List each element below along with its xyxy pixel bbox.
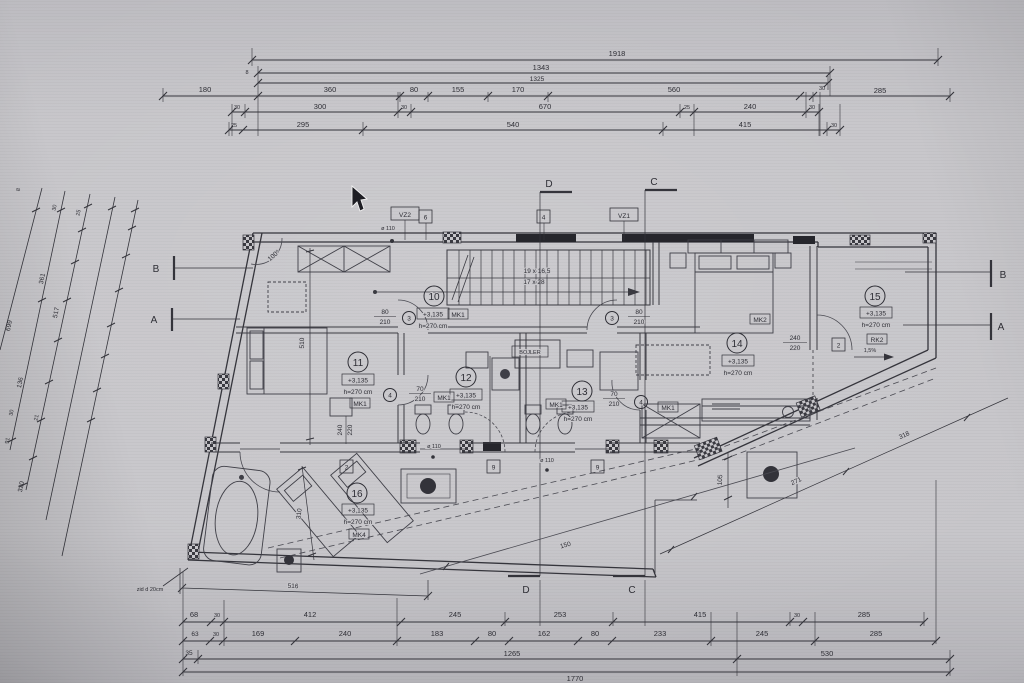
drain-note: ø 110 [381, 226, 395, 232]
door-type-circle: 3 [610, 316, 614, 323]
dim-label: 310 [295, 508, 303, 520]
shower-icon [401, 469, 456, 503]
dim-label: 169 [252, 629, 265, 638]
door-width: 240 [337, 424, 344, 435]
dim-label: 245 [449, 610, 462, 619]
door-width: 70 [416, 386, 424, 393]
drain-icon [545, 468, 549, 472]
dim-label: 25 [75, 209, 82, 216]
stair-tread-label: 17 x 28 [523, 279, 545, 286]
floor-tag-rk2: RK2 [871, 337, 884, 344]
floor-plan-drawing: 1918 1343 1325 8 180 360 80 155 170 560 … [0, 0, 1024, 683]
dim-label: 318 [898, 430, 911, 441]
room-label-11: 11 [353, 358, 364, 369]
floor-tag-mk1: MK1 [661, 405, 675, 412]
ceiling-height: h=270 cm [862, 322, 891, 329]
wall-thickness-note: zid d 20cm [137, 587, 164, 593]
wall-pier [218, 374, 229, 389]
door-tag-2: 2 [837, 343, 841, 350]
floor-tag-mk2: MK2 [753, 317, 767, 324]
dim-label: 68 [190, 610, 198, 619]
door-type-circle: 4 [388, 393, 392, 400]
wall-pier [188, 544, 199, 559]
dim-label: 415 [694, 610, 707, 619]
room-label-16: 16 [351, 489, 363, 500]
dim-label: 30 [214, 613, 220, 619]
shower-icon [747, 452, 797, 498]
slope-arrow [163, 354, 894, 587]
dim-label: 560 [668, 85, 681, 94]
dim-label: 25 [231, 123, 237, 129]
dim-label: 30 [794, 613, 800, 619]
dim-label: 25 [684, 105, 690, 111]
floor-tag-mk1: MK1 [437, 395, 451, 402]
wall-pier [243, 235, 254, 250]
door-width: 240 [790, 335, 801, 342]
window-fill [793, 236, 815, 244]
ceiling-height: h=270 cm [724, 370, 753, 377]
dim-label: 80 [410, 85, 418, 94]
door-swings [240, 238, 852, 492]
stair-direction-arrow [628, 288, 640, 296]
dim-label: 412 [304, 610, 317, 619]
dim-label: 183 [431, 629, 444, 638]
dim-label: 530 [821, 649, 834, 658]
dim-label: 699 [5, 319, 14, 331]
dim-label: 1918 [609, 49, 626, 58]
outdoor-sink-icon [277, 549, 301, 572]
dim-label: 360 [324, 85, 337, 94]
wardrobe-icon [298, 246, 390, 272]
dim-label: 30 [819, 86, 825, 92]
door-width: 80 [635, 309, 643, 316]
dim-label: 105 [717, 474, 725, 486]
dim-label: 517 [52, 306, 61, 318]
door-height: 220 [790, 345, 801, 352]
level-value: +3,135 [348, 378, 368, 385]
terrace-edges [268, 368, 936, 574]
dim-label: 300 [314, 102, 327, 111]
slope-label: 1,5% [864, 348, 877, 354]
ceiling-height: h=270 cm [344, 519, 373, 526]
section-label-d: D [522, 585, 529, 596]
wall-pier [443, 232, 461, 243]
dim-label: 320 [17, 480, 26, 492]
level-value: +3,135 [423, 312, 443, 319]
dim-label: 253 [554, 610, 567, 619]
drain-icon [390, 239, 394, 243]
dim-label: 30 [213, 632, 219, 638]
dim-label: 285 [870, 629, 883, 638]
wall-pier [606, 440, 619, 453]
window-fill [516, 234, 576, 242]
door-height: 210 [634, 319, 645, 326]
dim-label: 415 [739, 120, 752, 129]
room-label-12: 12 [460, 373, 472, 384]
dim-label: 540 [507, 120, 520, 129]
door-height: 210 [609, 401, 620, 408]
door-height: 210 [380, 319, 391, 326]
door-tag-6: 6 [424, 215, 428, 222]
left-dimension-labels: 8 30 25 361 517 699 136 30 21 91 320 [4, 188, 82, 493]
dim-label: 155 [452, 85, 465, 94]
door-height: 210 [415, 396, 426, 403]
window-tag-vz2: VZ2 [399, 212, 411, 219]
ceiling-height: h=270 cm [344, 389, 373, 396]
wall-pier [460, 440, 473, 453]
door-width: 70 [610, 391, 618, 398]
drain-note: ø 110 [540, 458, 554, 464]
dim-label: 30 [234, 105, 240, 111]
dim-label: 30 [8, 409, 15, 416]
dim-label: 1343 [533, 63, 550, 72]
left-dimension-block [0, 188, 139, 556]
dim-label: 162 [538, 629, 551, 638]
dim-label: 180 [199, 85, 212, 94]
dim-label: 21 [33, 414, 40, 421]
stair-riser-label: 19 x 16,5 [524, 268, 551, 275]
drain-note: ø 110 [427, 444, 441, 450]
ceiling-height: h=270 cm [452, 404, 481, 411]
dim-label: 30 [401, 105, 407, 111]
level-value: +3,135 [568, 405, 588, 412]
wall-pier [654, 440, 668, 453]
dim-label: 80 [488, 629, 496, 638]
ceiling-height: h=270 cm [564, 416, 593, 423]
door-type-circle: 4 [639, 400, 643, 407]
dim-label: 516 [288, 583, 299, 590]
dim-label: 240 [339, 629, 352, 638]
photographed-floorplan: 1918 1343 1325 8 180 360 80 155 170 560 … [0, 0, 1024, 683]
level-value: +3,135 [456, 393, 476, 400]
floor-tag-mk1: MK1 [353, 401, 367, 408]
dim-label: 150 [559, 541, 572, 551]
level-value: +3,135 [348, 508, 368, 515]
door-tag-9: 9 [492, 465, 496, 472]
dim-label: 63 [191, 631, 199, 638]
section-label-c: C [650, 177, 657, 188]
dim-label: 91 [4, 437, 11, 444]
dim-label: 30 [51, 204, 58, 211]
dim-label: 30 [831, 123, 837, 129]
dim-label: 245 [756, 629, 769, 638]
section-label-c: C [628, 585, 635, 596]
section-label-a: A [151, 315, 158, 326]
dim-label: 1265 [504, 649, 521, 658]
room-label-10: 10 [428, 292, 440, 303]
mouse-cursor-icon[interactable] [352, 186, 367, 211]
door-tag-9: 9 [596, 465, 600, 472]
dim-label: 285 [874, 86, 887, 95]
boiler-label: BOJLER [519, 350, 540, 356]
wall-pier [205, 437, 216, 452]
wall-pier [850, 235, 870, 245]
bottom-dimension-block [179, 480, 954, 676]
plan-notes: ø 110 ø 110 ø 110 100° 1,5% zid d 20cm [137, 226, 877, 593]
floor-tag-mk1: MK1 [549, 402, 563, 409]
room-label-14: 14 [731, 339, 743, 350]
dim-label: 1770 [567, 674, 584, 683]
dim-label: 295 [297, 120, 310, 129]
dim-label: 170 [512, 85, 525, 94]
dim-label: 285 [858, 610, 871, 619]
section-label-b: B [153, 264, 160, 275]
drain-icon [431, 455, 435, 459]
level-value: +3,135 [866, 311, 886, 318]
wall-pier [923, 233, 936, 243]
dim-label: 670 [539, 102, 552, 111]
dim-label: 510 [299, 337, 306, 348]
room-label-13: 13 [576, 387, 588, 398]
floor-tag-mk1: MK1 [451, 312, 465, 319]
wall-pier [400, 440, 416, 453]
level-value: +3,135 [728, 359, 748, 366]
door-tag-4: 4 [542, 215, 546, 222]
ceiling-height: h=270 cm [419, 323, 448, 330]
dim-label: 80 [591, 629, 599, 638]
dim-label: 35 [185, 650, 193, 657]
door-tag-2: 2 [345, 465, 349, 472]
dim-label: 240 [744, 102, 757, 111]
dim-label: 30 [809, 105, 815, 111]
door-height: 220 [347, 424, 354, 435]
dim-label: 233 [654, 629, 667, 638]
section-label-b: B [1000, 270, 1007, 281]
dim-label: 1325 [530, 76, 545, 83]
floor-tag-mk4: MK4 [352, 532, 366, 539]
section-label-a: A [998, 322, 1005, 333]
room-label-15: 15 [869, 292, 881, 303]
dim-label: 8 [16, 188, 23, 192]
door-type-circle: 3 [407, 316, 411, 323]
top-dimension-labels: 1918 1343 1325 8 180 360 80 155 170 560 … [199, 49, 887, 129]
section-label-d: D [545, 179, 552, 190]
stairs [373, 250, 650, 305]
door-width: 80 [381, 309, 389, 316]
window-tag-vz1: VZ1 [618, 213, 630, 220]
dim-label: 8 [245, 70, 248, 76]
